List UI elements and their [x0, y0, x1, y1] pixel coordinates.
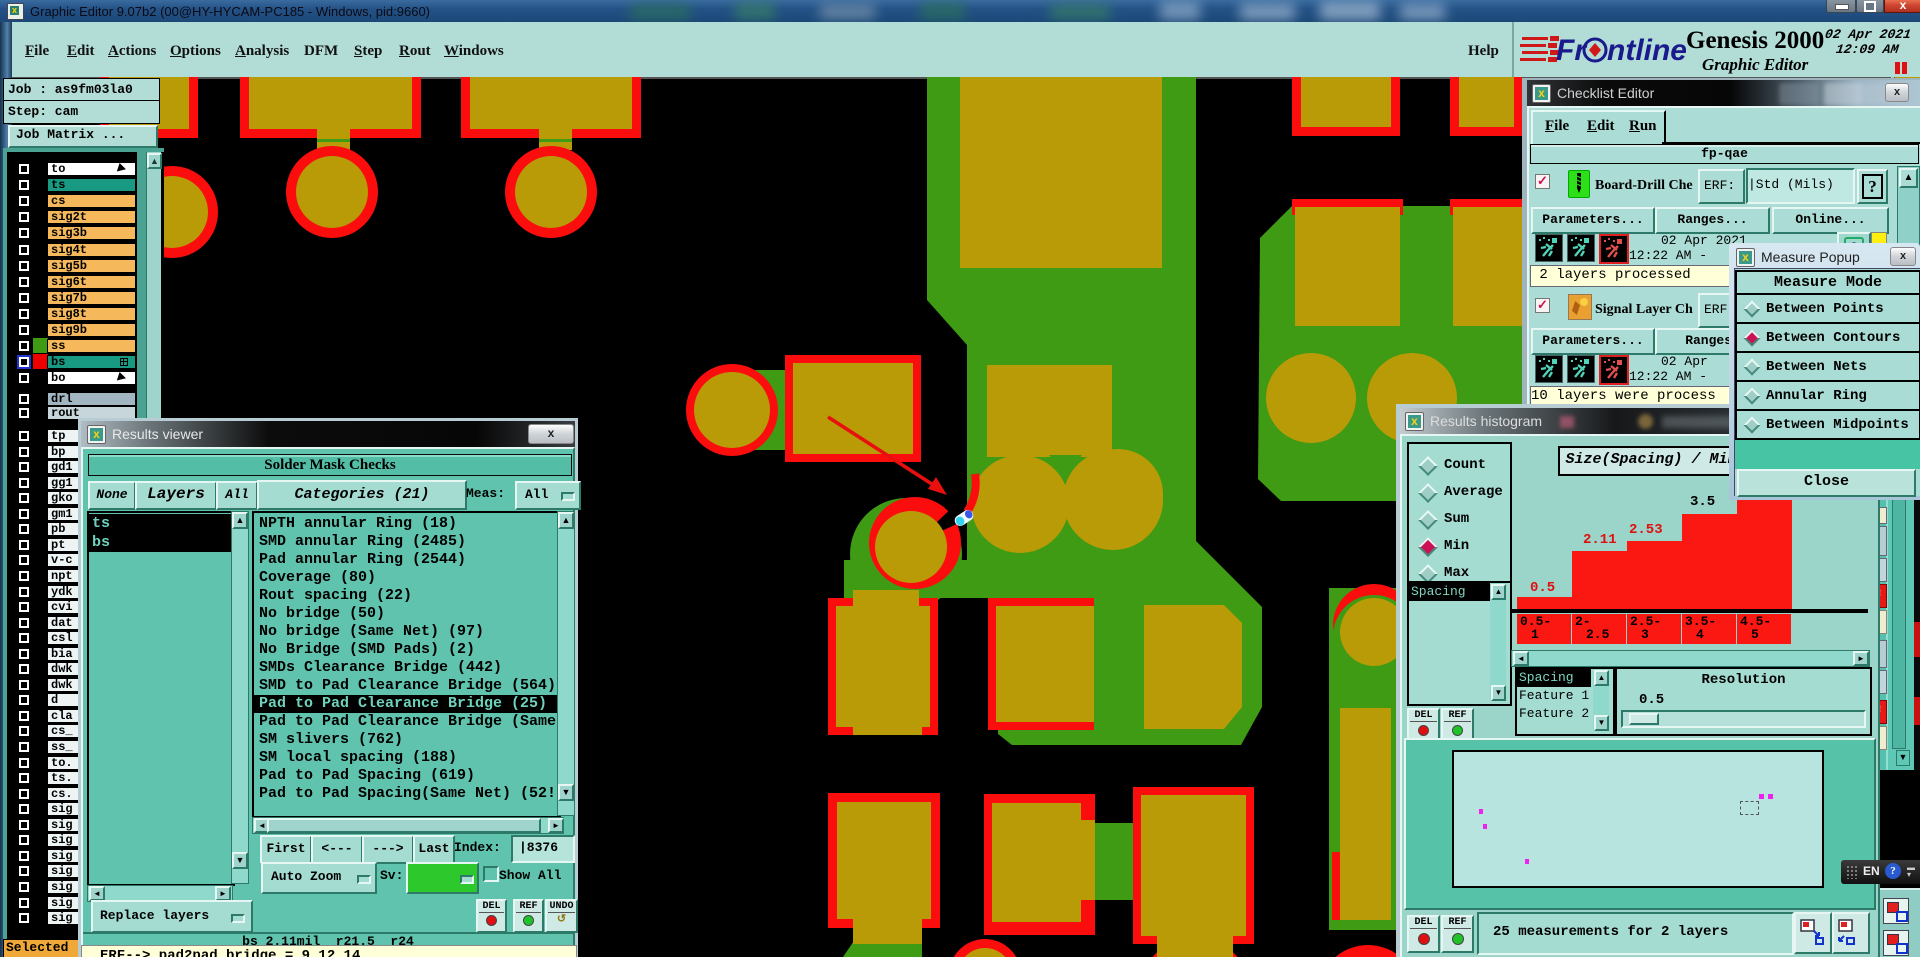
svg-text:ntline: ntline [1607, 34, 1686, 67]
